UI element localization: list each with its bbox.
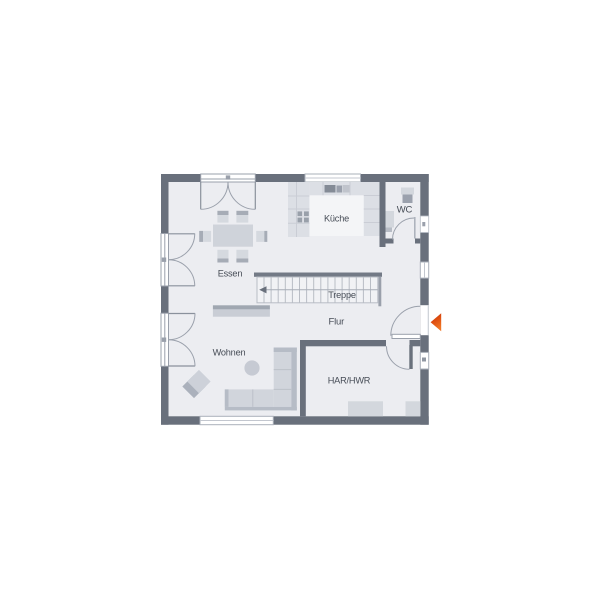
svg-text:Flur: Flur — [329, 317, 345, 328]
svg-text:Essen: Essen — [218, 269, 243, 279]
svg-text:Wohnen: Wohnen — [213, 348, 246, 358]
svg-text:Küche: Küche — [324, 214, 349, 224]
svg-text:WC: WC — [397, 205, 413, 216]
svg-text:Treppe: Treppe — [328, 290, 356, 300]
svg-text:HAR/HWR: HAR/HWR — [328, 375, 371, 385]
